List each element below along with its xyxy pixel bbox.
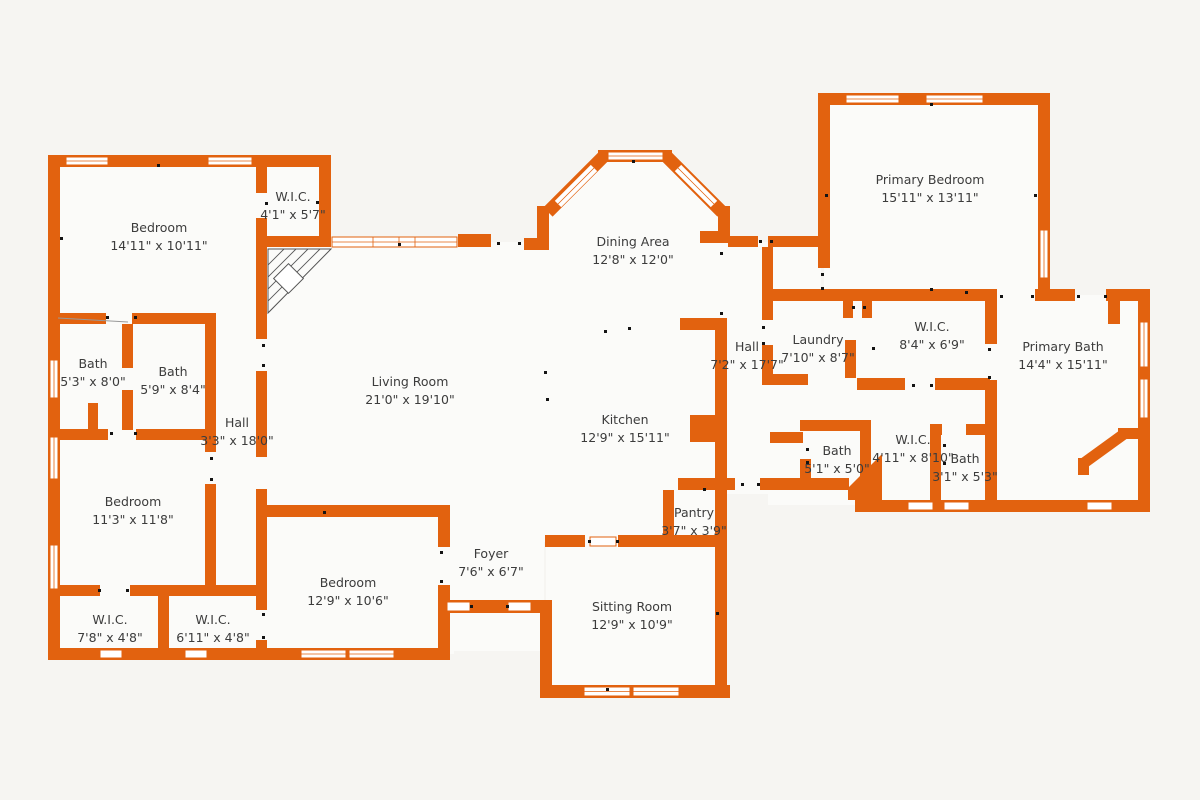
room-dims: 7'6" x 6'7" — [458, 563, 524, 581]
room-name: Bath — [804, 442, 870, 460]
room-label-kitchen: Kitchen12'9" x 15'11" — [580, 411, 669, 447]
room-label-bath-2: Bath5'9" x 8'4" — [140, 363, 206, 399]
room-dims: 7'8" x 4'8" — [77, 629, 143, 647]
room-dims: 6'11" x 4'8" — [176, 629, 249, 647]
room-label-pantry: Pantry3'7" x 3'9" — [661, 504, 727, 540]
room-dims: 21'0" x 19'10" — [365, 391, 454, 409]
room-name: Bath — [140, 363, 206, 381]
room-name: Bedroom — [307, 574, 388, 592]
room-label-primary-bath: Primary Bath14'4" x 15'11" — [1018, 338, 1107, 374]
room-dims: 7'2" x 17'7" — [710, 356, 783, 374]
room-dims: 12'9" x 10'6" — [307, 592, 388, 610]
room-name: W.I.C. — [260, 188, 326, 206]
room-dims: 15'11" x 13'11" — [876, 189, 985, 207]
room-dims: 3'7" x 3'9" — [661, 522, 727, 540]
room-name: Primary Bedroom — [876, 171, 985, 189]
room-name: Foyer — [458, 545, 524, 563]
room-name: Laundry — [781, 331, 854, 349]
room-dims: 5'1" x 5'0" — [804, 460, 870, 478]
room-dims: 12'9" x 15'11" — [580, 429, 669, 447]
room-label-bedroom-2: Bedroom11'3" x 11'8" — [92, 493, 173, 529]
room-name: Bedroom — [92, 493, 173, 511]
room-name: Sitting Room — [591, 598, 672, 616]
room-label-dining-area: Dining Area12'8" x 12'0" — [592, 233, 673, 269]
room-label-hall-2: Hall7'2" x 17'7" — [710, 338, 783, 374]
room-dims: 5'9" x 8'4" — [140, 381, 206, 399]
room-dims: 4'1" x 5'7" — [260, 206, 326, 224]
room-name: Bedroom — [110, 219, 207, 237]
room-label-wic-4: W.I.C.8'4" x 6'9" — [899, 318, 965, 354]
room-name: Primary Bath — [1018, 338, 1107, 356]
room-dims: 14'11" x 10'11" — [110, 237, 207, 255]
room-name: Bath — [60, 355, 126, 373]
room-name: W.I.C. — [872, 431, 953, 449]
room-dims: 3'3" x 18'0" — [200, 432, 273, 450]
room-label-sitting-room: Sitting Room12'9" x 10'9" — [591, 598, 672, 634]
room-dims: 5'3" x 8'0" — [60, 373, 126, 391]
room-name: Pantry — [661, 504, 727, 522]
room-label-wic-2: W.I.C.7'8" x 4'8" — [77, 611, 143, 647]
room-label-wic-3: W.I.C.6'11" x 4'8" — [176, 611, 249, 647]
room-name: Hall — [710, 338, 783, 356]
room-label-bedroom-1: Bedroom14'11" x 10'11" — [110, 219, 207, 255]
room-label-laundry: Laundry7'10" x 8'7" — [781, 331, 854, 367]
room-name: Kitchen — [580, 411, 669, 429]
floor-plan: Bedroom14'11" x 10'11" W.I.C.4'1" x 5'7"… — [0, 0, 1200, 800]
room-name: W.I.C. — [77, 611, 143, 629]
room-label-bath-3: Bath5'1" x 5'0" — [804, 442, 870, 478]
room-label-wic-1: W.I.C.4'1" x 5'7" — [260, 188, 326, 224]
room-name: Living Room — [365, 373, 454, 391]
room-name: W.I.C. — [176, 611, 249, 629]
room-name: Hall — [200, 414, 273, 432]
room-label-primary-bedroom: Primary Bedroom15'11" x 13'11" — [876, 171, 985, 207]
room-label-foyer: Foyer7'6" x 6'7" — [458, 545, 524, 581]
room-dims: 14'4" x 15'11" — [1018, 356, 1107, 374]
room-name: Bath — [932, 450, 998, 468]
room-dims: 12'8" x 12'0" — [592, 251, 673, 269]
room-label-living-room: Living Room21'0" x 19'10" — [365, 373, 454, 409]
floorplan-drawing — [0, 0, 1200, 800]
room-label-hall-1: Hall3'3" x 18'0" — [200, 414, 273, 450]
room-name: W.I.C. — [899, 318, 965, 336]
room-label-bath-4: Bath3'1" x 5'3" — [932, 450, 998, 486]
room-dims: 11'3" x 11'8" — [92, 511, 173, 529]
room-label-bath-1: Bath5'3" x 8'0" — [60, 355, 126, 391]
room-dims: 12'9" x 10'9" — [591, 616, 672, 634]
room-dims: 7'10" x 8'7" — [781, 349, 854, 367]
room-dims: 3'1" x 5'3" — [932, 468, 998, 486]
room-name: Dining Area — [592, 233, 673, 251]
room-label-bedroom-3: Bedroom12'9" x 10'6" — [307, 574, 388, 610]
room-dims: 8'4" x 6'9" — [899, 336, 965, 354]
